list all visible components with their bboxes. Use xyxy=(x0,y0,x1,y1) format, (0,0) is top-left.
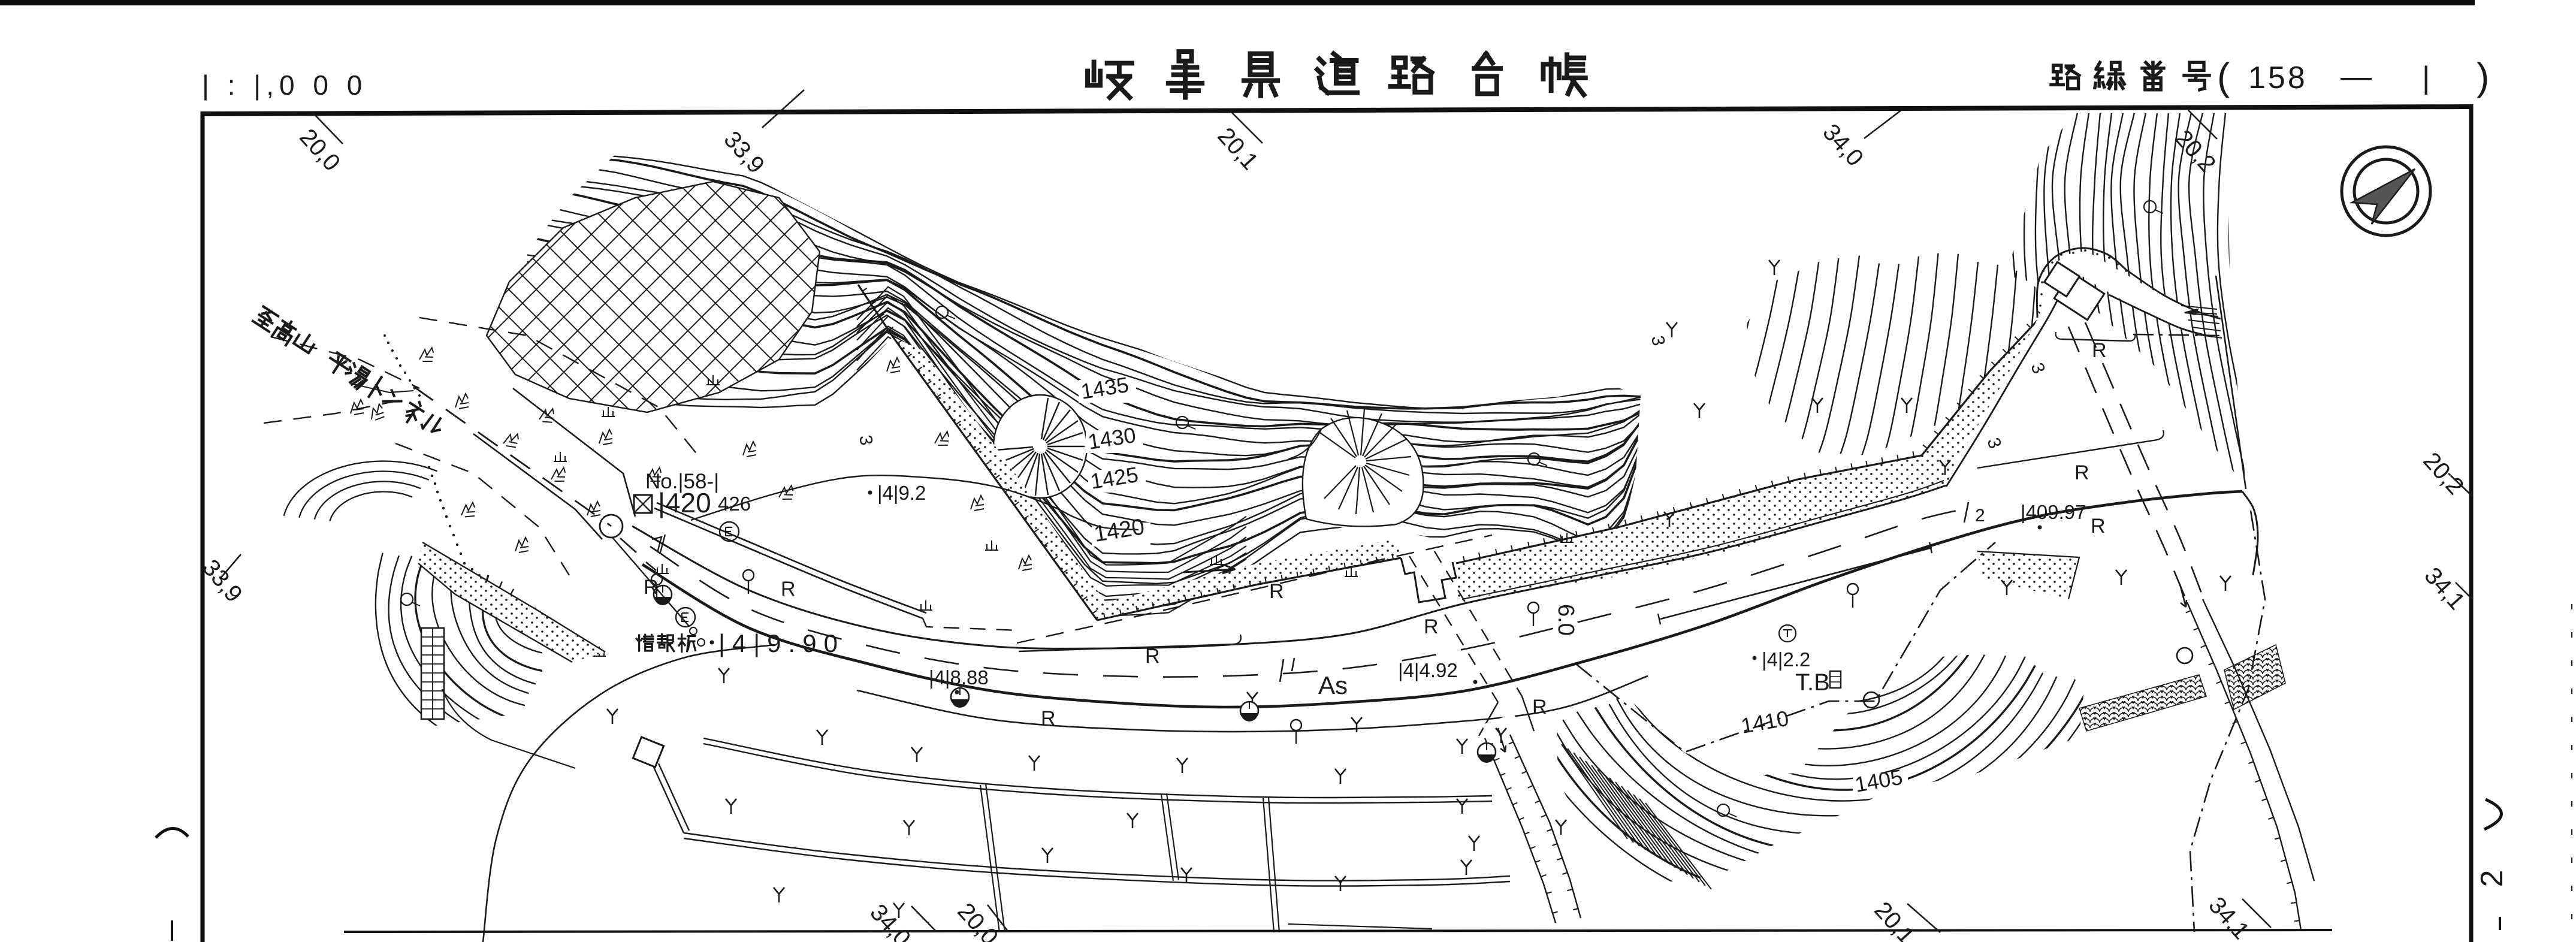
svg-text:|4|4.92: |4|4.92 xyxy=(1398,659,1458,681)
svg-text:R: R xyxy=(1424,615,1439,638)
svg-text:2: 2 xyxy=(2475,870,2509,887)
svg-text:T.B: T.B xyxy=(1795,669,1830,696)
svg-text:|4|8.88: |4|8.88 xyxy=(929,666,989,689)
svg-text:R: R xyxy=(781,578,796,600)
svg-text:2: 2 xyxy=(1975,506,1985,526)
svg-text:|: | xyxy=(2422,61,2430,95)
svg-text:—: — xyxy=(2341,59,2372,94)
svg-text:R: R xyxy=(2092,339,2107,362)
svg-text:R: R xyxy=(1041,707,1056,730)
svg-text:|4|9.90: |4|9.90 xyxy=(718,629,845,657)
svg-text:R: R xyxy=(2091,515,2106,538)
svg-text:|4|2.2: |4|2.2 xyxy=(1762,648,1810,671)
svg-text:R: R xyxy=(2074,461,2089,484)
svg-text:(: ( xyxy=(2217,55,2230,98)
svg-text:158: 158 xyxy=(2248,61,2308,95)
svg-text:| : |,0 0 0: | : |,0 0 0 xyxy=(202,70,367,101)
svg-text:|420: |420 xyxy=(658,487,711,518)
svg-text:|4|9.2: |4|9.2 xyxy=(877,482,926,504)
svg-text:R: R xyxy=(644,576,659,599)
svg-text:): ) xyxy=(2477,55,2489,98)
svg-text:As: As xyxy=(1318,671,1348,699)
svg-text:R: R xyxy=(1532,696,1547,718)
svg-text:426: 426 xyxy=(718,493,751,515)
svg-text:6.0: 6.0 xyxy=(1553,604,1578,636)
svg-text:R: R xyxy=(1269,580,1284,603)
svg-text:|409.97: |409.97 xyxy=(2021,501,2086,523)
svg-text:R: R xyxy=(1145,645,1160,668)
